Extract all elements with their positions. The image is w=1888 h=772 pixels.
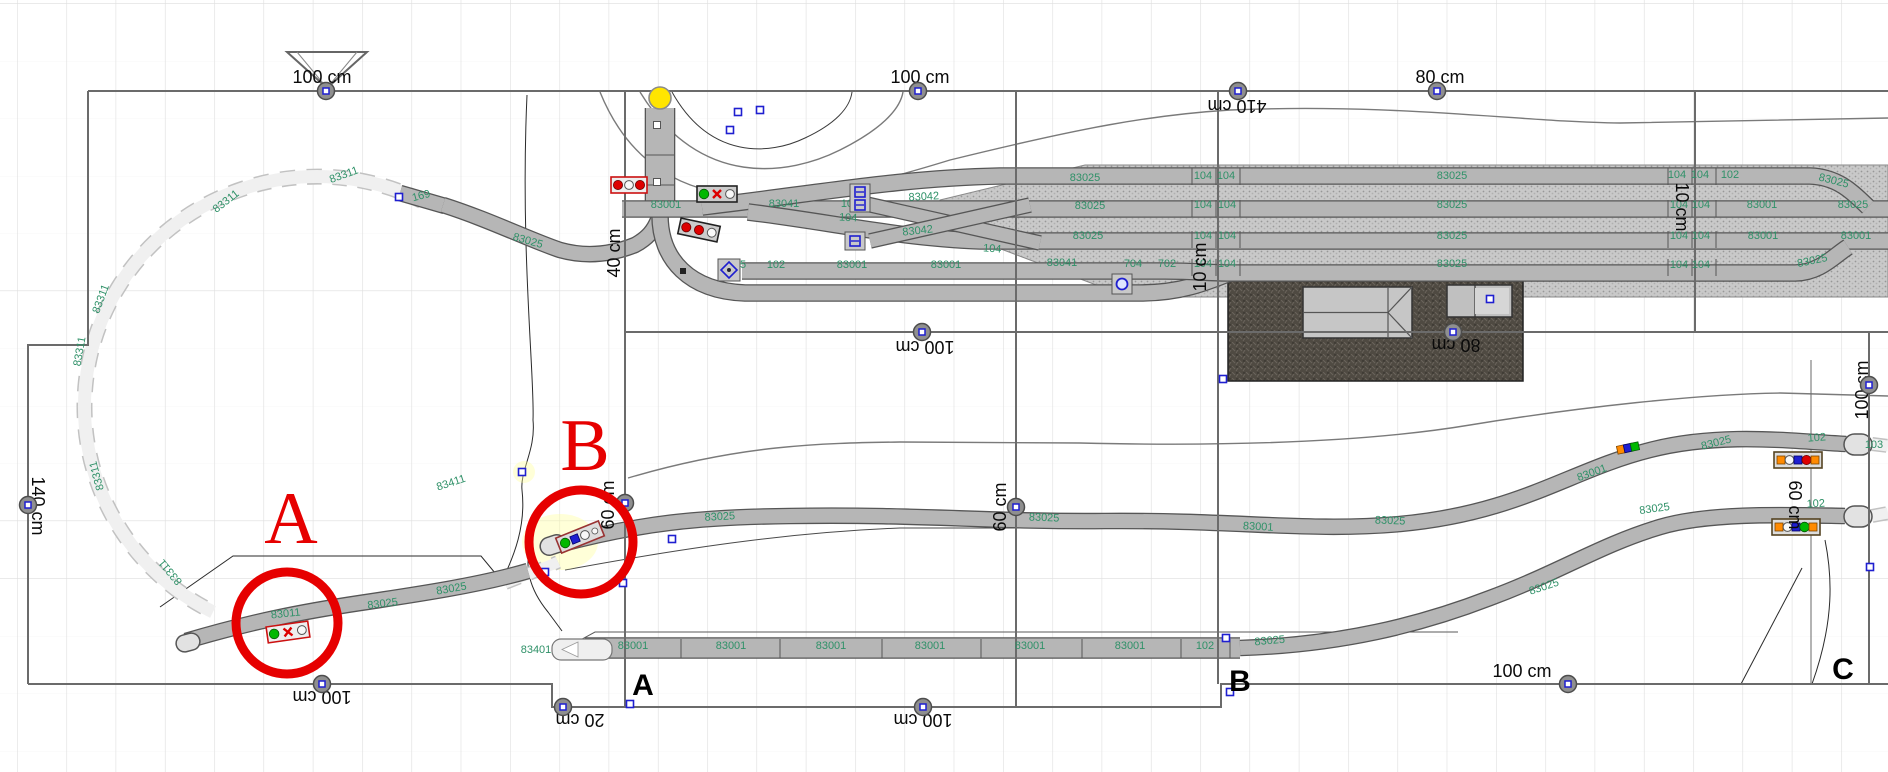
track-part-number-label: 83041 — [769, 198, 800, 210]
track-part-number-label: 104 — [1194, 230, 1212, 242]
track-plan-drawing[interactable]: 8331183311833118331183311833111698302583… — [0, 0, 1888, 772]
buffer-stop[interactable] — [1844, 506, 1872, 527]
red-light-icon — [635, 180, 644, 189]
track-part-number-label: 104 — [983, 242, 1002, 255]
track-part-number-label: 83001 — [1748, 230, 1779, 242]
selection-handle[interactable] — [669, 536, 676, 543]
track-part-number-label: 104 — [1218, 199, 1236, 211]
measure-node-handle[interactable] — [1565, 681, 1571, 687]
track-part-number-label: 83025 — [1437, 258, 1468, 270]
track-part-number-label: 104 — [1218, 230, 1236, 242]
track-part-number-label: 104 — [1668, 169, 1686, 181]
track-part-number-label: 83401 — [521, 644, 552, 656]
track-part-number-label: 104 — [1692, 259, 1710, 271]
track-part-number-label: 104 — [1194, 199, 1212, 211]
track-part-number-label: 83025 — [1070, 172, 1101, 184]
selection-handle[interactable] — [735, 109, 742, 116]
track-part-number-label: 83001 — [1115, 640, 1146, 652]
orange-light-icon — [1777, 456, 1785, 464]
crossing-diamond-icon[interactable] — [718, 259, 740, 281]
selection-handle[interactable] — [1487, 296, 1494, 303]
track-part-number-label: 103 — [1865, 439, 1883, 451]
track-part-number-label: 83025 — [1437, 170, 1468, 182]
switch-circle-glyph — [1117, 279, 1128, 290]
orange-light-icon — [1809, 523, 1817, 531]
dimension-label: 40 cm — [604, 228, 624, 277]
track-part-number-label: 83001 — [1747, 199, 1778, 211]
icon-box — [850, 184, 870, 212]
dimension-label: 60 cm — [1785, 480, 1805, 529]
track-part-number-label: 102 — [1721, 169, 1739, 181]
track-part-number-label: 104 — [1691, 169, 1709, 181]
track-part-number-label: 83001 — [915, 640, 946, 652]
track-part-number-label: 83025 — [1073, 230, 1104, 242]
white-light-icon — [726, 190, 735, 199]
road-crossing-piece[interactable] — [552, 639, 612, 660]
switch-motor-icon[interactable] — [1112, 274, 1132, 294]
dimension-label: 10 cm — [1672, 182, 1692, 231]
orange-light-icon — [1775, 523, 1783, 531]
measure-node-handle[interactable] — [1013, 504, 1019, 510]
track-part-number-label: 104 — [839, 212, 858, 225]
dimension-label: 10 cm — [1190, 242, 1210, 291]
track-part-number-label: 83025 — [1437, 230, 1468, 242]
track-part-number-label: 102 — [1196, 640, 1214, 652]
track-part-number-label: 83025 — [1375, 514, 1406, 527]
track-part-number-label: 83001 — [931, 259, 962, 271]
turnout-switch-icon[interactable] — [850, 184, 870, 212]
selection-handle[interactable] — [396, 194, 403, 201]
section-marker-a: A — [632, 669, 654, 702]
track-part-number-label: 83025 — [1437, 199, 1468, 211]
measure-node-handle[interactable] — [25, 502, 31, 508]
track-part-number-label: 104 — [1692, 230, 1710, 242]
measure-node-handle[interactable] — [323, 88, 329, 94]
track-part-number-label: 104 — [1218, 258, 1236, 270]
measure-node-handle[interactable] — [560, 704, 566, 710]
track-part-number-label: 104 — [1670, 259, 1688, 271]
track-part-number-label: 83025 — [1075, 200, 1106, 212]
orange-light-icon — [1811, 456, 1819, 464]
track-part-number-label: 83025 — [704, 510, 735, 524]
track-plan-canvas: 8331183311833118331183311833111698302583… — [0, 0, 1888, 772]
measure-node-handle[interactable] — [919, 329, 925, 335]
track-accessory-marker[interactable] — [654, 179, 661, 186]
green-light-icon — [1630, 442, 1639, 451]
measure-node-handle[interactable] — [915, 88, 921, 94]
track-part-number-label: 104 — [1217, 170, 1235, 182]
selection-handle[interactable] — [1220, 376, 1227, 383]
track-part-number-label: 83001 — [816, 640, 847, 652]
red-light-icon — [613, 180, 622, 189]
white-light-icon — [1785, 456, 1794, 465]
measure-node-handle[interactable] — [319, 681, 325, 687]
track-part-number-label: 104 — [1670, 230, 1688, 242]
yellow-lamp-signal[interactable] — [649, 87, 671, 109]
measure-node-handle[interactable] — [1434, 88, 1440, 94]
track-dot-marker — [680, 268, 686, 274]
track-part-number-label: 83042 — [908, 190, 939, 204]
selection-handle[interactable] — [1867, 564, 1874, 571]
section-marker-b: B — [1229, 665, 1251, 698]
track-part-number-label: 104 — [1692, 199, 1710, 211]
track-part-number-label: 102 — [1806, 498, 1825, 511]
white-light-icon — [625, 181, 634, 190]
buffer-stop-body — [1844, 506, 1872, 527]
green-light-icon — [699, 189, 709, 199]
annotation-letter-b: B — [560, 405, 609, 487]
track-accessory-marker[interactable] — [654, 122, 661, 129]
track-part-number-label: 83001 — [651, 199, 682, 211]
dimension-label: 100 cm — [1492, 661, 1551, 681]
track-segment[interactable] — [742, 271, 1230, 273]
turnout-switch-icon[interactable] — [845, 232, 865, 250]
track-part-number-label: 702 — [1158, 258, 1176, 270]
track-part-number-label: 83001 — [1841, 230, 1872, 242]
measure-node-handle[interactable] — [920, 704, 926, 710]
track-part-number-label: 102 — [767, 259, 785, 271]
track-part-number-label: 704 — [1124, 258, 1142, 270]
measure-node-handle[interactable] — [1450, 329, 1456, 335]
blue-switch-square-icon — [1794, 456, 1802, 464]
signal[interactable] — [611, 177, 647, 193]
track-part-number-label: 102 — [1807, 431, 1826, 444]
track-part-number-label: 83001 — [837, 259, 868, 271]
track-part-number-label: 83001 — [1243, 520, 1274, 534]
selection-handle[interactable] — [1223, 635, 1230, 642]
selection-handle[interactable] — [757, 107, 764, 114]
track-part-number-label: 83001 — [618, 640, 649, 652]
selection-handle[interactable] — [519, 469, 526, 476]
measure-node-handle[interactable] — [1866, 382, 1872, 388]
red-light-icon — [1802, 455, 1811, 464]
diamond-dot — [727, 268, 731, 272]
signal[interactable] — [697, 186, 737, 202]
track-part-number-label: 83041 — [1047, 257, 1078, 269]
signal[interactable] — [1774, 452, 1822, 468]
annotation-letter-a: A — [264, 478, 317, 560]
track-part-number-label: 83001 — [716, 640, 747, 652]
selection-handle[interactable] — [727, 127, 734, 134]
track-part-number-label: 83025 — [1029, 511, 1060, 524]
track-part-number-label: 83025 — [1838, 199, 1869, 211]
phantom-track[interactable] — [1872, 513, 1888, 516]
track-part-number-label: 83001 — [1015, 640, 1046, 652]
measure-node-handle[interactable] — [1235, 88, 1241, 94]
section-marker-c: C — [1832, 653, 1854, 686]
track-part-number-label: 104 — [1194, 170, 1212, 182]
